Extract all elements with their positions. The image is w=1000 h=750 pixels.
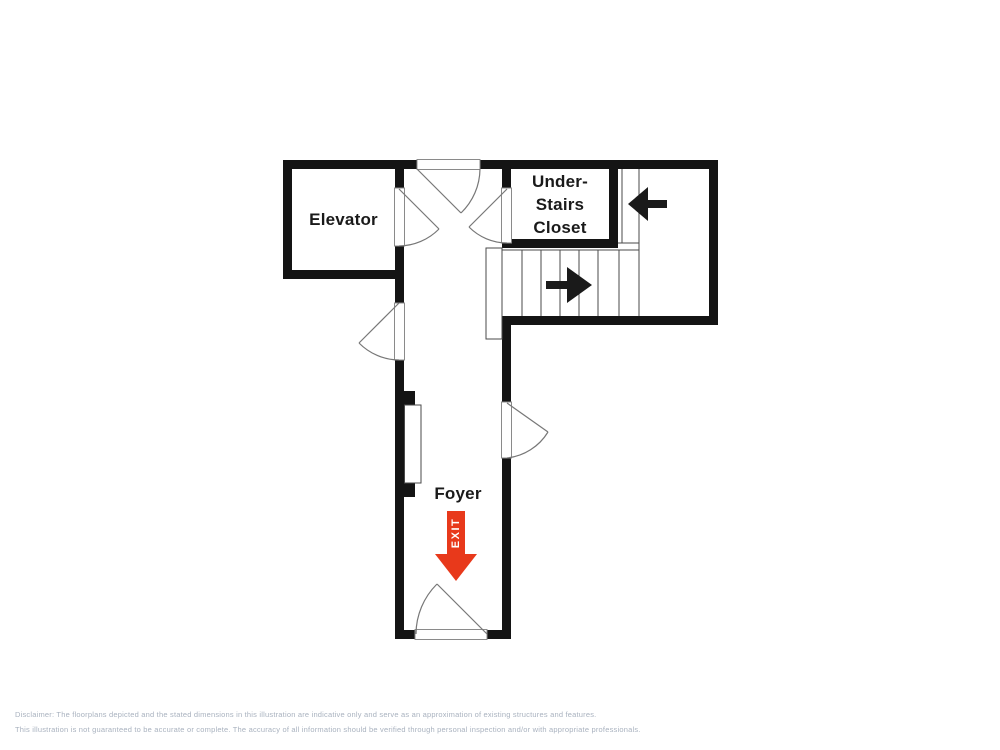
wall-corridor-left-lower xyxy=(395,360,404,639)
exit-door xyxy=(416,584,487,634)
wall-outer-right xyxy=(709,160,718,325)
opening-left-side-door xyxy=(395,303,405,360)
wall-closet-left-stub xyxy=(502,160,511,188)
stair-bottom-steps xyxy=(486,248,502,339)
exit-arrow-head xyxy=(435,554,477,581)
opening-elevator-door xyxy=(395,188,405,246)
disclaimer-line-1: Disclaimer: The floorplans depicted and … xyxy=(15,710,596,719)
wall-elevator-left xyxy=(283,160,292,279)
wall-closet-right xyxy=(609,160,618,248)
wall-corridor-right-mid xyxy=(502,320,511,402)
opening-right-side-door xyxy=(502,402,512,458)
vestibule-top-door xyxy=(417,169,480,213)
wall-corridor-left-stub xyxy=(395,160,404,188)
stairs-left-arrow-icon xyxy=(628,187,667,221)
wall-nib-upper xyxy=(404,391,415,405)
wall-corridor-left-mid xyxy=(395,246,404,303)
exit-arrow-label: EXIT xyxy=(448,511,464,555)
disclaimer-line-2: This illustration is not guaranteed to b… xyxy=(15,725,641,734)
opening-closet-door xyxy=(502,188,512,243)
foyer-room-label: Foyer xyxy=(404,482,512,505)
closet-label-line1: Under- xyxy=(511,170,609,193)
walls xyxy=(283,160,718,639)
elevator-room-label: Elevator xyxy=(292,208,395,231)
left-side-door xyxy=(359,303,399,360)
wall-niche xyxy=(405,405,422,483)
opening-exit-door xyxy=(415,630,487,640)
wall-elevator-bottom xyxy=(283,270,404,279)
closet-label-line3: Closet xyxy=(511,216,609,239)
floorplan-page: Elevator Under- Stairs Closet Foyer EXIT… xyxy=(0,0,1000,750)
floorplan-drawing xyxy=(0,0,1000,750)
opening-vestibule-top-door xyxy=(417,160,480,170)
stairs-up-arrow-icon xyxy=(546,267,592,303)
wall-top xyxy=(283,160,718,169)
wall-closet-bottom xyxy=(502,239,618,248)
wall-stairs-bottom xyxy=(502,316,718,325)
right-side-door xyxy=(507,403,548,458)
closet-label-line2: Stairs xyxy=(511,193,609,216)
understairs-closet-room-label: Under- Stairs Closet xyxy=(511,170,609,239)
